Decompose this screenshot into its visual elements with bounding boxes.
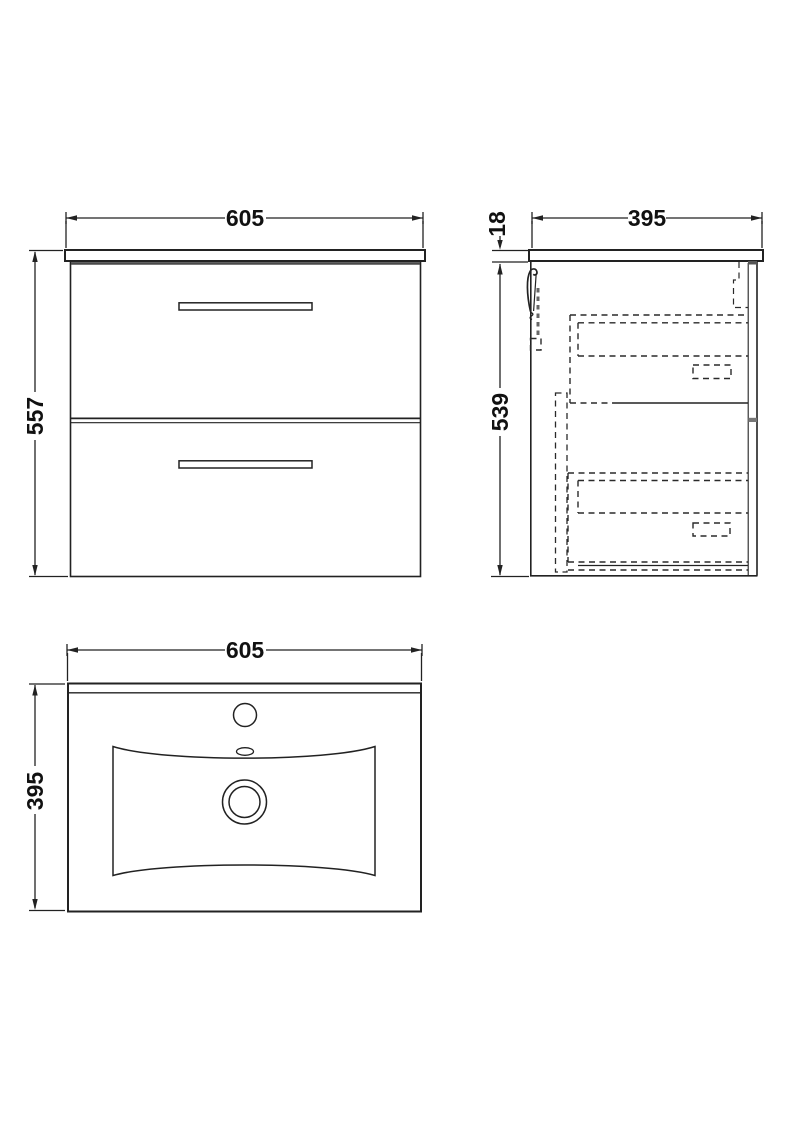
- technical-drawing-page: 605 557: [0, 0, 800, 1132]
- basin-bowl-outline: [113, 747, 375, 876]
- plan-width-label: 605: [226, 637, 265, 663]
- dimension-arrow: [411, 647, 422, 652]
- worktop-thickness-dimension: 18: [484, 211, 528, 262]
- plan-depth-label: 395: [22, 772, 48, 811]
- dimension-arrow: [751, 215, 762, 220]
- plan-width-dimension: 605: [67, 637, 422, 681]
- front-height-dimension: 557: [22, 251, 68, 577]
- dimension-arrow: [66, 215, 77, 220]
- tap-hole: [234, 704, 257, 727]
- side-section-view: 395 18 539: [484, 205, 763, 577]
- dimension-arrow: [32, 251, 37, 262]
- waste-drain-inner: [229, 787, 260, 818]
- dimension-arrow: [32, 899, 37, 910]
- wall-bracket-detail: [527, 269, 541, 350]
- dimension-arrow: [412, 215, 423, 220]
- dimension-arrow: [67, 647, 78, 652]
- hidden-rear-void: [556, 393, 568, 572]
- dimension-arrow: [497, 240, 502, 250]
- hidden-runner-bracket: [693, 523, 730, 536]
- top-drawer-handle: [179, 303, 312, 310]
- upper-hidden-drawer-box: [570, 315, 748, 403]
- front-width-dimension: 605: [66, 205, 423, 248]
- dimension-arrow: [32, 685, 37, 696]
- front-panel-top-edge: [748, 261, 757, 265]
- side-worktop: [529, 250, 763, 261]
- overflow-hole: [237, 748, 254, 756]
- lower-hidden-drawer-box: [568, 473, 748, 570]
- front-worktop: [65, 250, 425, 261]
- plan-worktop-outline: [68, 684, 421, 912]
- dimension-arrow: [532, 215, 543, 220]
- bottom-drawer-handle: [179, 461, 312, 468]
- front-width-label: 605: [226, 205, 265, 231]
- dimension-arrow: [32, 565, 37, 576]
- side-depth-label: 395: [628, 205, 667, 231]
- vanity-unit-technical-drawing: 605 557: [0, 0, 800, 1132]
- hidden-runner-bracket: [693, 365, 731, 379]
- cabinet-height-dimension: 539: [487, 264, 529, 577]
- plan-depth-dimension: 395: [22, 684, 65, 911]
- dimension-arrow: [497, 565, 502, 576]
- drawer-front-gap-notch: [748, 418, 757, 422]
- front-height-label: 557: [22, 397, 48, 435]
- cabinet-height-label: 539: [487, 393, 513, 431]
- worktop-thickness-label: 18: [484, 211, 510, 237]
- front-elevation-view: 605 557: [22, 205, 425, 577]
- dimension-arrow: [497, 264, 502, 275]
- side-depth-dimension: 395: [532, 205, 762, 248]
- wall-bracket-hook-stem: [534, 274, 537, 312]
- bracket-hidden-plate: [531, 339, 542, 351]
- hidden-front-step-line: [734, 262, 749, 308]
- plan-view: 605 395: [22, 637, 422, 912]
